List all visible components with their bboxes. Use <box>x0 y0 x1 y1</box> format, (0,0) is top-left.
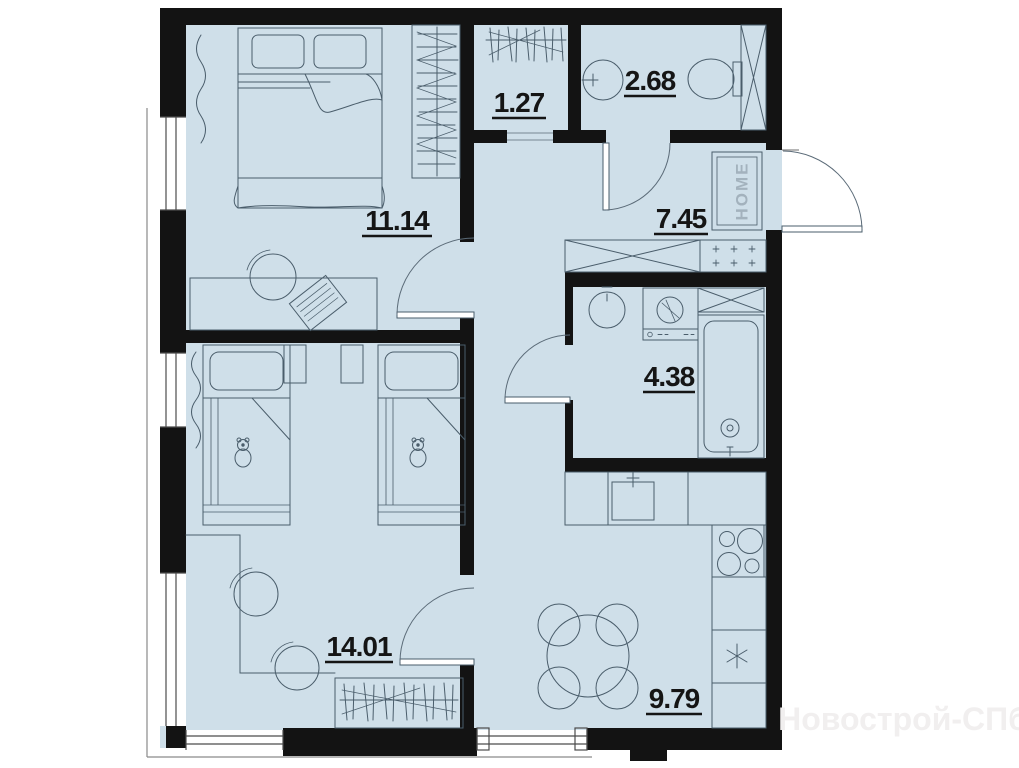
door-leaf-bathroom-main <box>505 397 570 403</box>
wall-bedroom-kidsroom <box>160 330 474 343</box>
label-hallway-area: 7.45 <box>656 203 707 234</box>
wall-hall-top-a <box>474 130 507 143</box>
floor-plan-canvas: 11.14 1.27 2.68 7.45 4.38 14.01 9.79 HOM… <box>0 0 1019 768</box>
doormat-label: HOME <box>732 162 751 221</box>
wall-hall-top-c <box>670 130 782 143</box>
window-kitchen-bottom <box>477 728 587 750</box>
door-arc-entrance <box>783 151 862 229</box>
door-leaf-kidsroom <box>400 659 474 665</box>
door-leaf-bathroom-top <box>603 143 609 210</box>
window-kidsroom-2 <box>150 573 186 726</box>
wall-bottom-step <box>630 748 667 761</box>
wall-closet-bathroom <box>568 25 581 143</box>
label-bedroom-area: 11.14 <box>365 205 430 236</box>
wall-right-1 <box>766 8 782 150</box>
wall-right-2 <box>766 230 782 748</box>
wall-bottom-left <box>283 728 477 756</box>
label-closet-area: 1.27 <box>494 87 545 118</box>
label-bathroom-main-area: 4.38 <box>644 361 695 392</box>
window-kidsroom-1 <box>150 353 186 427</box>
wall-bathroom-kitchen <box>565 458 782 472</box>
wall-kidsroom-kitchen-lower <box>460 662 474 728</box>
wall-bottom-right <box>587 728 782 750</box>
wall-hall-bathroom <box>565 272 782 287</box>
wall-bathroom-left-b <box>565 400 573 458</box>
door-leaf-entrance <box>782 226 862 232</box>
wall-left-3 <box>160 427 186 573</box>
label-kids-room-area: 14.01 <box>326 631 391 662</box>
label-kitchen-area: 9.79 <box>649 683 700 714</box>
watermark-text: Новострой-СПб <box>778 701 1019 737</box>
label-bathroom-top-area: 2.68 <box>625 65 676 96</box>
wall-top <box>160 8 782 25</box>
window-bedroom <box>150 117 186 210</box>
door-leaf-bedroom <box>397 312 474 318</box>
wall-left-1 <box>160 8 186 117</box>
wall-bedroom-corridor-upper <box>460 25 474 242</box>
floor-plan-page: 11.14 1.27 2.68 7.45 4.38 14.01 9.79 HOM… <box>0 0 1019 768</box>
wall-kidsroom-kitchen-upper <box>460 343 474 575</box>
window-bottom-left <box>186 730 283 750</box>
wall-hall-top-b <box>553 130 606 143</box>
wall-bathroom-left-a <box>565 287 573 345</box>
wall-left-corner <box>166 726 186 748</box>
